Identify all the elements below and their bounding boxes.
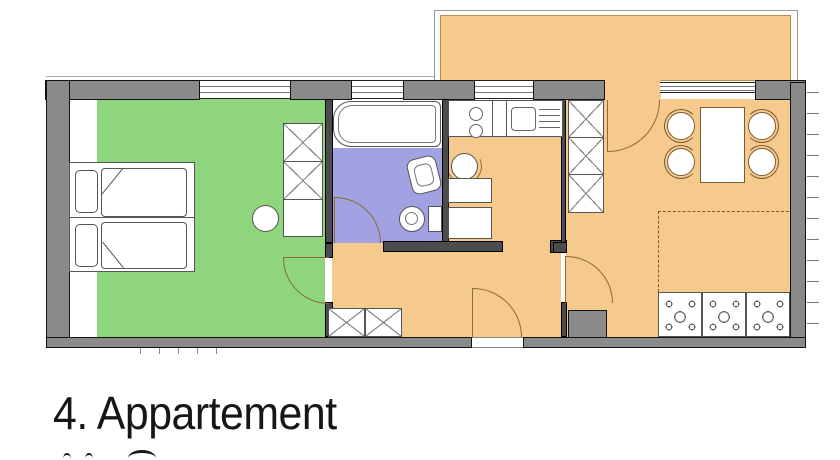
facade-line xyxy=(46,76,434,77)
wall-bedroom-bathroom xyxy=(325,99,333,243)
entrance-door-leaf xyxy=(472,288,473,337)
cutoff-text-fragment-1 xyxy=(63,453,71,460)
right-wall xyxy=(790,82,806,348)
living-door-leaf xyxy=(565,256,566,303)
bedroom-closet-cell2 xyxy=(283,161,323,200)
bottom-wall-right xyxy=(523,337,806,348)
living-closet-cell2 xyxy=(568,137,604,175)
top-wall-segment-2 xyxy=(290,80,352,100)
sofa-cushion-3 xyxy=(746,292,790,337)
chair4 xyxy=(748,148,776,176)
bed1-mattress xyxy=(101,168,187,217)
entrance-threshold xyxy=(472,337,523,348)
bed1-pillow xyxy=(75,170,98,213)
shaft-block xyxy=(568,310,607,338)
sofa-bed-outline xyxy=(658,211,789,292)
floor-plan-canvas: 4. Appartement xyxy=(0,0,840,460)
bathroom-window xyxy=(352,80,403,99)
bathroom-door-leaf xyxy=(334,197,335,243)
left-wall xyxy=(46,80,70,348)
dining-table xyxy=(700,107,745,183)
balcony-door-leaf xyxy=(607,100,608,152)
bottom-tick-marks xyxy=(140,348,218,354)
bedroom-closet-cell3 xyxy=(283,199,323,237)
sofa-cushion-2 xyxy=(702,292,746,337)
wall-hall-living-foot xyxy=(553,242,567,253)
cutoff-text-fragment-2 xyxy=(85,453,93,460)
chair1 xyxy=(667,112,695,140)
right-side-tick-marks xyxy=(807,92,819,324)
kitchen-sink xyxy=(511,107,536,131)
living-closet-cell3 xyxy=(568,174,604,213)
sofa-cushion-1 xyxy=(658,292,702,337)
top-wall-segment-3 xyxy=(403,80,475,100)
kitchen-cabinet-1 xyxy=(448,178,492,203)
stove-burner-1 xyxy=(469,107,483,121)
kitchen-window xyxy=(475,80,533,99)
counter-divider-1 xyxy=(492,100,493,137)
bottom-wall-left xyxy=(46,337,472,348)
chair3 xyxy=(748,112,776,140)
wall-bedroom-hall-upper xyxy=(325,243,333,258)
top-wall-segment-4 xyxy=(533,80,605,100)
bedroom-stool xyxy=(252,205,279,232)
wall-bathroom-bottom xyxy=(383,241,503,252)
balcony-floor xyxy=(440,15,791,81)
bedroom-window xyxy=(200,80,290,99)
balcony-window xyxy=(660,82,755,93)
chair2 xyxy=(667,148,695,176)
living-closet-cell1 xyxy=(568,100,604,138)
beds-divider-line xyxy=(69,217,195,218)
plan-title: 4. Appartement xyxy=(53,386,337,440)
bedroom-door-leaf xyxy=(283,257,329,258)
wall-hall-living-lower xyxy=(561,302,567,337)
bed2-mattress xyxy=(101,222,187,269)
bedroom-closet-cell1 xyxy=(283,123,323,162)
balcony-door-threshold xyxy=(604,80,661,100)
toilet-tank xyxy=(428,206,442,232)
toilet-bowl-inner xyxy=(405,212,418,225)
stove-burner-2 xyxy=(469,124,483,138)
bed2-pillow xyxy=(75,224,98,267)
hall-wardrobe-cell2 xyxy=(365,308,402,337)
counter-divider-2 xyxy=(506,100,507,137)
sink-drainer-lines xyxy=(539,109,560,131)
bathtub-inner xyxy=(338,105,436,143)
cutoff-text-fragment-3 xyxy=(128,450,156,460)
hall-wardrobe-cell1 xyxy=(328,308,365,337)
kitchen-cabinet-2 xyxy=(448,207,492,239)
